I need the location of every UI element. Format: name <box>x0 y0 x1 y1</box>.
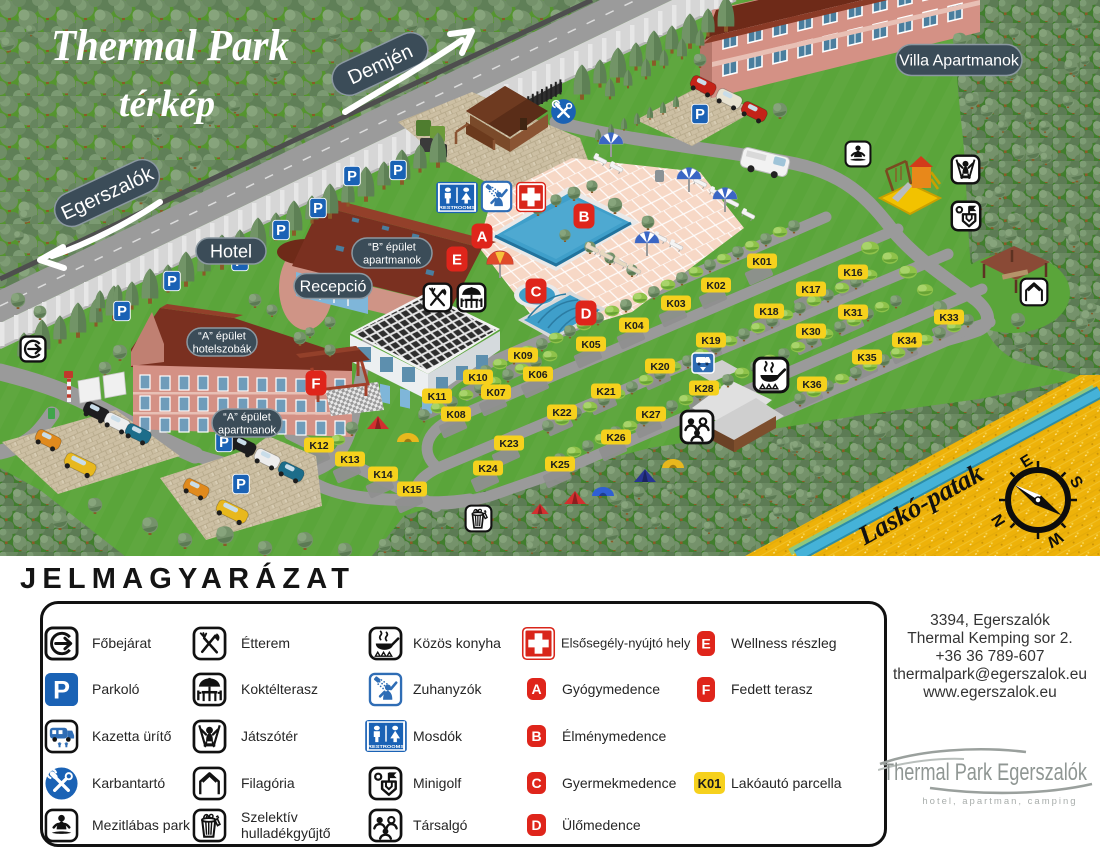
svg-text:K28: K28 <box>694 383 713 395</box>
svg-text:K15: K15 <box>402 484 421 496</box>
svg-text:“B” épület: “B” épület <box>368 241 416 253</box>
svg-text:E: E <box>701 636 710 652</box>
svg-text:“A” épület: “A” épület <box>223 411 271 423</box>
svg-text:K30: K30 <box>801 326 820 338</box>
svg-text:K07: K07 <box>486 387 505 399</box>
svg-text:hotelszobák: hotelszobák <box>193 343 252 355</box>
svg-text:F: F <box>311 375 320 392</box>
svg-text:hotel, apartman, camping: hotel, apartman, camping <box>922 796 1077 807</box>
svg-text:D: D <box>581 305 592 322</box>
svg-text:K23: K23 <box>499 438 518 450</box>
svg-text:apartmanok: apartmanok <box>218 424 277 436</box>
svg-text:K26: K26 <box>606 432 625 444</box>
svg-text:K36: K36 <box>802 379 821 391</box>
svg-text:K09: K09 <box>513 350 532 362</box>
svg-text:C: C <box>531 775 541 791</box>
svg-text:K33: K33 <box>939 312 958 324</box>
svg-text:P: P <box>695 107 705 123</box>
svg-text:P: P <box>236 477 246 493</box>
svg-text:A: A <box>477 228 488 245</box>
svg-text:K17: K17 <box>801 284 820 296</box>
svg-text:K01: K01 <box>752 256 771 268</box>
svg-text:K02: K02 <box>706 280 725 292</box>
svg-text:térkép: térkép <box>119 83 215 125</box>
svg-text:K05: K05 <box>581 339 600 351</box>
svg-text:K14: K14 <box>373 469 392 481</box>
svg-text:apartmanok: apartmanok <box>363 254 422 266</box>
svg-text:K10: K10 <box>468 372 487 384</box>
svg-text:K22: K22 <box>552 407 571 419</box>
svg-text:K16: K16 <box>843 267 862 279</box>
svg-text:K19: K19 <box>701 335 720 347</box>
svg-text:K25: K25 <box>550 459 569 471</box>
svg-text:P: P <box>117 304 127 320</box>
svg-text:K11: K11 <box>428 391 447 403</box>
svg-text:P: P <box>393 163 403 179</box>
svg-text:K01: K01 <box>698 776 722 791</box>
svg-text:B: B <box>579 208 590 225</box>
svg-text:K21: K21 <box>596 386 615 398</box>
svg-text:Thermal Park: Thermal Park <box>51 21 289 70</box>
svg-text:K35: K35 <box>857 352 876 364</box>
svg-text:E: E <box>452 251 462 268</box>
svg-text:D: D <box>531 817 541 833</box>
svg-text:K03: K03 <box>666 298 685 310</box>
svg-text:B: B <box>531 728 541 744</box>
svg-text:K12: K12 <box>309 440 328 452</box>
svg-text:K08: K08 <box>446 409 465 421</box>
svg-text:K31: K31 <box>843 307 862 319</box>
svg-text:Villa Apartmanok: Villa Apartmanok <box>899 53 1020 70</box>
svg-text:K27: K27 <box>641 409 660 421</box>
svg-text:K20: K20 <box>650 361 669 373</box>
svg-text:Recepció: Recepció <box>300 279 367 296</box>
svg-text:K06: K06 <box>528 369 547 381</box>
svg-text:P: P <box>167 274 177 290</box>
svg-text:P: P <box>347 169 357 185</box>
svg-text:C: C <box>531 283 542 300</box>
svg-text:P: P <box>276 223 286 239</box>
svg-text:“A” épület: “A” épület <box>198 330 246 342</box>
svg-text:Thermal Park Egerszalók: Thermal Park Egerszalók <box>883 759 1088 786</box>
svg-text:A: A <box>531 681 541 697</box>
svg-text:Hotel: Hotel <box>210 241 252 261</box>
svg-text:P: P <box>313 201 323 217</box>
svg-text:F: F <box>702 682 711 698</box>
svg-text:K13: K13 <box>340 454 359 466</box>
svg-text:K34: K34 <box>897 335 916 347</box>
svg-text:K18: K18 <box>759 306 778 318</box>
svg-text:K04: K04 <box>624 320 643 332</box>
svg-text:K24: K24 <box>478 463 497 475</box>
